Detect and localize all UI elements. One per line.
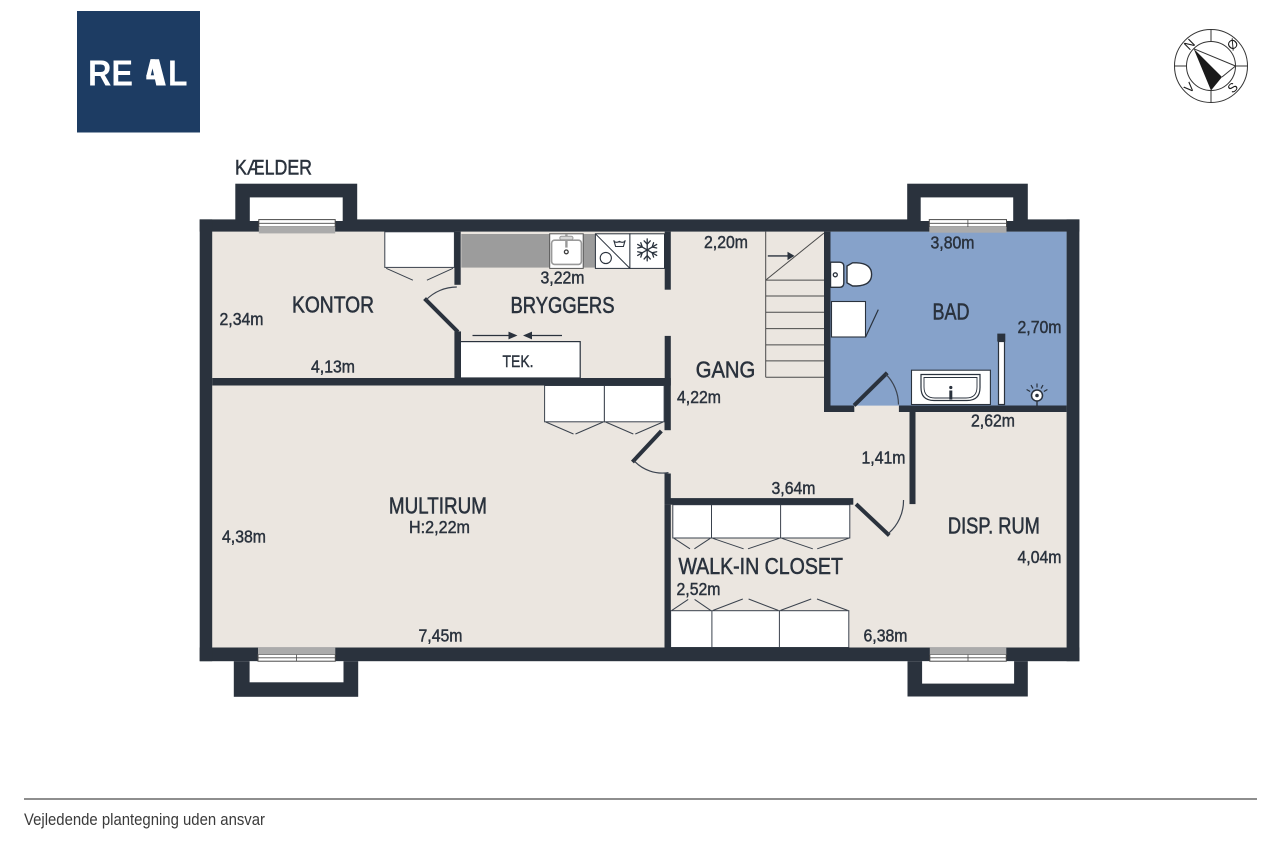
svg-text:2,52m: 2,52m [677,579,721,599]
svg-text:4,38m: 4,38m [222,527,266,547]
svg-text:BRYGGERS: BRYGGERS [511,292,615,318]
svg-text:4,04m: 4,04m [1018,547,1062,567]
svg-text:KÆLDER: KÆLDER [235,156,312,180]
svg-text:DISP. RUM: DISP. RUM [948,513,1040,539]
svg-text:2,20m: 2,20m [704,232,748,252]
svg-text:2,62m: 2,62m [971,411,1015,431]
svg-text:H:2,22m: H:2,22m [409,517,470,537]
svg-text:4,13m: 4,13m [311,357,355,377]
svg-text:2,34m: 2,34m [220,309,264,329]
svg-text:MULTIRUM: MULTIRUM [389,492,487,518]
svg-text:BAD: BAD [933,298,970,324]
svg-text:3,22m: 3,22m [541,268,585,288]
svg-text:TEK.: TEK. [503,352,534,371]
svg-text:L: L [168,53,188,94]
svg-text:GANG: GANG [696,357,756,383]
svg-text:4,22m: 4,22m [677,387,721,407]
svg-text:3,64m: 3,64m [772,478,816,498]
svg-text:WALK-IN CLOSET: WALK-IN CLOSET [678,553,843,579]
svg-text:3,80m: 3,80m [931,233,975,253]
svg-text:Vejledende plantegning uden an: Vejledende plantegning uden ansvar [24,811,265,829]
svg-text:RE: RE [88,53,133,94]
svg-text:6,38m: 6,38m [864,625,908,645]
svg-text:KONTOR: KONTOR [292,292,374,318]
svg-text:1,41m: 1,41m [862,448,906,468]
svg-text:2,70m: 2,70m [1018,317,1062,337]
svg-text:7,45m: 7,45m [419,625,463,645]
